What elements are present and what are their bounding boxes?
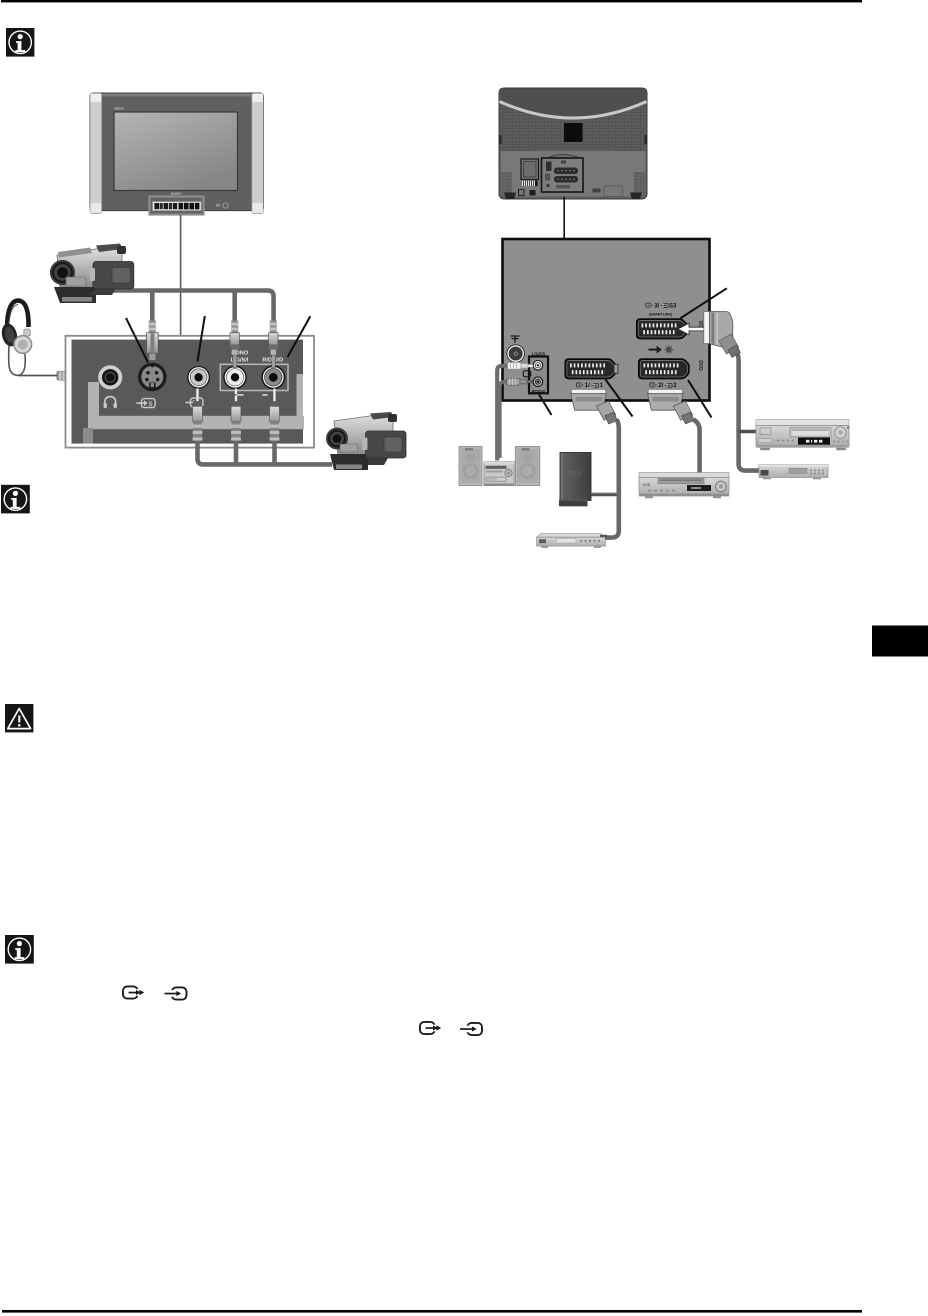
svg-text:S: S <box>149 402 153 408</box>
svg-text:2/: 2/ <box>658 383 663 389</box>
svg-text:R/D/D/D: R/D/D/D <box>532 389 546 393</box>
svg-text:1/: 1/ <box>585 383 590 389</box>
svg-text:PS2: PS2 <box>567 471 582 478</box>
svg-text:3/: 3/ <box>654 304 659 310</box>
svg-text:SONY: SONY <box>170 191 182 196</box>
svg-text:DVD: DVD <box>643 483 651 487</box>
svg-text:WEGA: WEGA <box>115 107 125 111</box>
svg-text:DVD: DVD <box>697 360 703 371</box>
svg-text:(SMARTLINK): (SMARTLINK) <box>649 313 673 317</box>
svg-text:S3: S3 <box>669 304 677 310</box>
